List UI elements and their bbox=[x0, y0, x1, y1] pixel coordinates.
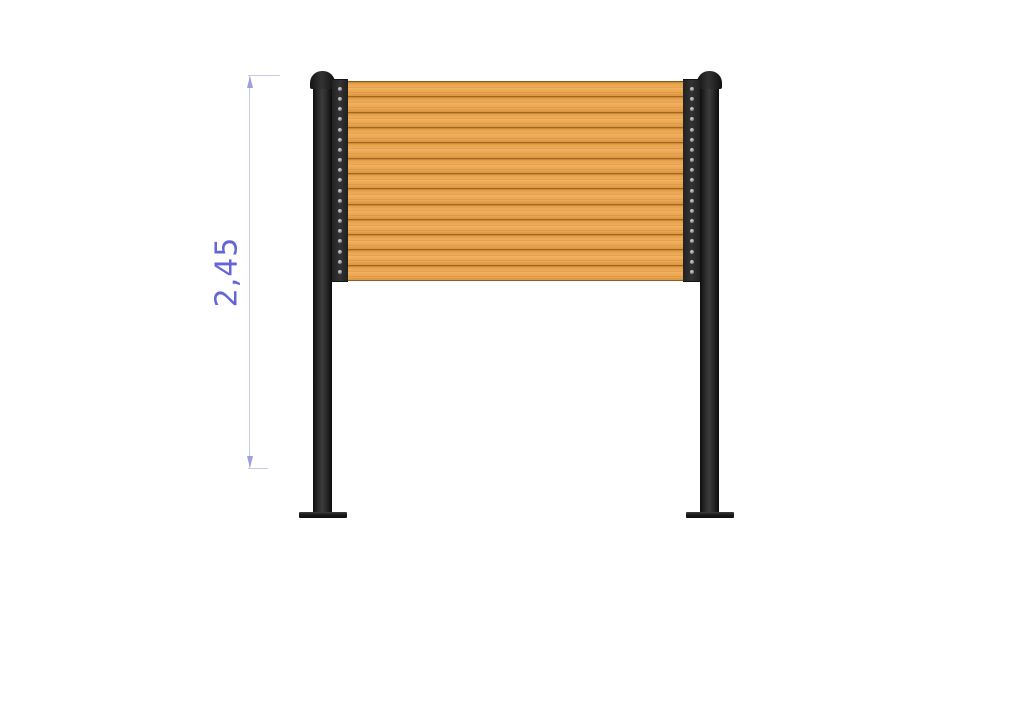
rivet-icon bbox=[690, 148, 694, 152]
rivet-icon bbox=[690, 168, 694, 172]
dimension-line bbox=[249, 76, 250, 468]
right-post bbox=[700, 80, 719, 512]
rivet-icon bbox=[338, 97, 342, 101]
rivet-icon bbox=[690, 239, 694, 243]
panel-slat bbox=[348, 142, 683, 157]
right-rivet-strip bbox=[683, 79, 700, 282]
panel-slat bbox=[348, 188, 683, 203]
dimension-arrow-down-icon bbox=[247, 456, 253, 468]
rivet-icon bbox=[338, 239, 342, 243]
rivet-icon bbox=[338, 270, 342, 274]
rivet-icon bbox=[338, 199, 342, 203]
rivet-icon bbox=[690, 250, 694, 254]
panel-slat bbox=[348, 265, 683, 280]
rivet-icon bbox=[690, 138, 694, 142]
rivet-icon bbox=[338, 219, 342, 223]
panel-slat bbox=[348, 249, 683, 264]
rivet-icon bbox=[338, 87, 342, 91]
left-post bbox=[313, 80, 332, 512]
panel-slat bbox=[348, 234, 683, 249]
rivet-icon bbox=[690, 260, 694, 264]
rivet-icon bbox=[338, 209, 342, 213]
rivet-icon bbox=[338, 178, 342, 182]
rivet-icon bbox=[690, 87, 694, 91]
rivet-icon bbox=[338, 260, 342, 264]
dimension-extension-line-bottom bbox=[248, 468, 268, 469]
left-rivet-strip bbox=[332, 79, 348, 282]
rivet-icon bbox=[338, 158, 342, 162]
panel-slat bbox=[348, 112, 683, 127]
rivet-icon bbox=[338, 189, 342, 193]
rivet-icon bbox=[338, 128, 342, 132]
rivet-icon bbox=[690, 158, 694, 162]
panel-slat bbox=[348, 173, 683, 188]
rivet-icon bbox=[690, 178, 694, 182]
rivet-icon bbox=[338, 168, 342, 172]
rivet-icon bbox=[690, 199, 694, 203]
dimension-label: 2,45 bbox=[210, 237, 245, 308]
panel-slat bbox=[348, 82, 683, 96]
rivet-icon bbox=[690, 128, 694, 132]
panel-slat bbox=[348, 127, 683, 142]
rivet-icon bbox=[338, 250, 342, 254]
rivet-icon bbox=[338, 107, 342, 111]
rivet-icon bbox=[338, 148, 342, 152]
rivet-icon bbox=[690, 189, 694, 193]
rivet-icon bbox=[690, 107, 694, 111]
dimension-arrow-up-icon bbox=[247, 76, 253, 88]
rivet-icon bbox=[338, 229, 342, 233]
rivet-icon bbox=[690, 219, 694, 223]
rivet-icon bbox=[690, 117, 694, 121]
panel-slat bbox=[348, 219, 683, 234]
rivet-icon bbox=[690, 209, 694, 213]
panel-slat bbox=[348, 158, 683, 173]
panel-slat bbox=[348, 96, 683, 111]
left-post-base-plate bbox=[299, 512, 347, 518]
rivet-icon bbox=[690, 97, 694, 101]
rivet-icon bbox=[690, 229, 694, 233]
panel-slat bbox=[348, 204, 683, 219]
wood-slat-panel bbox=[348, 81, 683, 281]
technical-drawing-canvas: 2,45 bbox=[0, 0, 1024, 724]
rivet-icon bbox=[338, 117, 342, 121]
rivet-icon bbox=[338, 138, 342, 142]
rivet-icon bbox=[690, 270, 694, 274]
right-post-cap bbox=[697, 71, 722, 89]
right-post-base-plate bbox=[686, 512, 734, 518]
